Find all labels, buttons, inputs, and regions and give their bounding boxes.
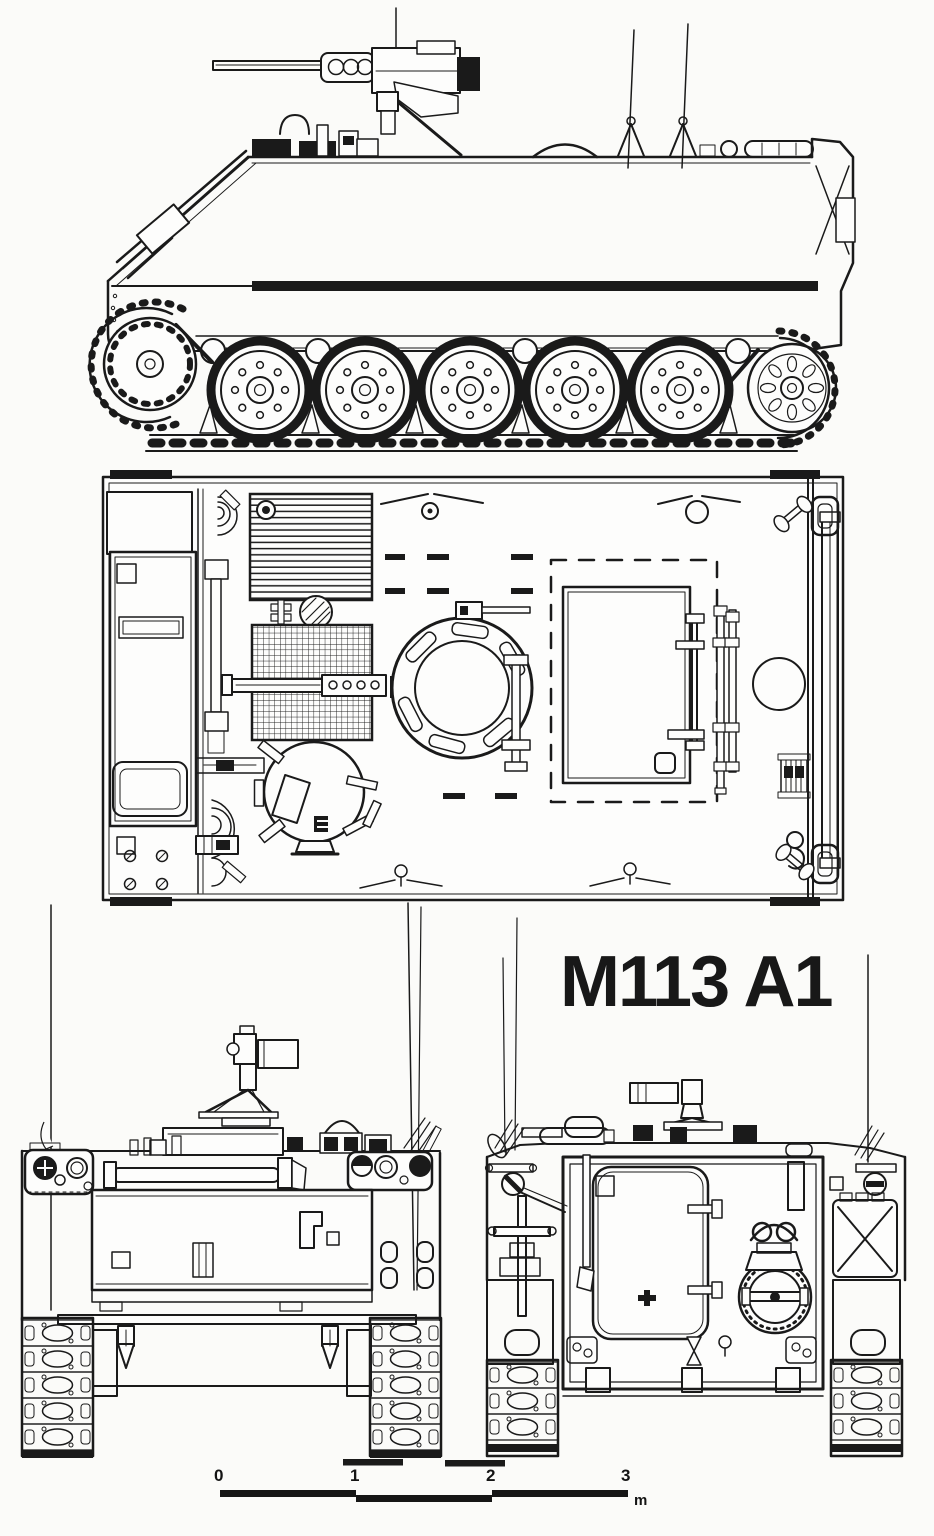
headlight-cluster-right xyxy=(348,1152,432,1190)
ground-mark-left xyxy=(343,1459,403,1466)
drive-sprocket xyxy=(104,318,196,410)
side-elevation-view xyxy=(90,8,855,451)
rear-left-fittings xyxy=(486,1164,568,1316)
rear-track-right xyxy=(831,1360,902,1456)
machine-gun-rear xyxy=(630,1080,722,1130)
bow-hinge-rod-front xyxy=(104,1158,306,1190)
hull-side xyxy=(108,139,855,355)
fuel-filler-cap xyxy=(300,596,332,628)
engine-grille-louvered xyxy=(250,494,372,600)
trim-vane-front xyxy=(92,1190,372,1290)
machine-gun-front xyxy=(199,1026,298,1126)
ramp-personnel-door xyxy=(577,1155,722,1339)
scale-tick-2: 2 xyxy=(486,1466,495,1486)
side-skirt-strip xyxy=(252,281,818,291)
blueprint-page: M113 A1 0 1 2 3 m xyxy=(0,0,934,1536)
drawing-title: M113 A1 xyxy=(560,941,880,1023)
roof-fittings-side xyxy=(252,115,813,157)
scale-unit-label: m xyxy=(634,1492,647,1509)
scale-bar-segment-1 xyxy=(220,1490,356,1497)
scale-tick-0: 0 xyxy=(214,1466,223,1486)
road-wheels xyxy=(211,341,729,439)
front-view xyxy=(22,903,441,1458)
top-plan-view xyxy=(103,470,843,906)
front-track-left xyxy=(22,1318,93,1458)
scale-tick-1: 1 xyxy=(350,1466,359,1486)
front-track-right xyxy=(370,1318,441,1458)
tow-hook-right xyxy=(322,1326,338,1368)
scale-bar-segment-3 xyxy=(492,1490,628,1497)
rear-track-left xyxy=(487,1360,558,1456)
running-gear-side xyxy=(90,302,836,451)
scale-bar-segment-2 xyxy=(356,1495,492,1502)
scale-bar: 0 1 2 3 m xyxy=(200,1466,670,1512)
headlight-cluster-left xyxy=(25,1143,93,1194)
lifting-plugs-front xyxy=(381,1242,433,1288)
scale-tick-3: 3 xyxy=(621,1466,630,1486)
tow-hook-left xyxy=(118,1326,134,1368)
jerry-can xyxy=(833,1193,897,1277)
m113-four-view-drawing xyxy=(0,0,934,1536)
